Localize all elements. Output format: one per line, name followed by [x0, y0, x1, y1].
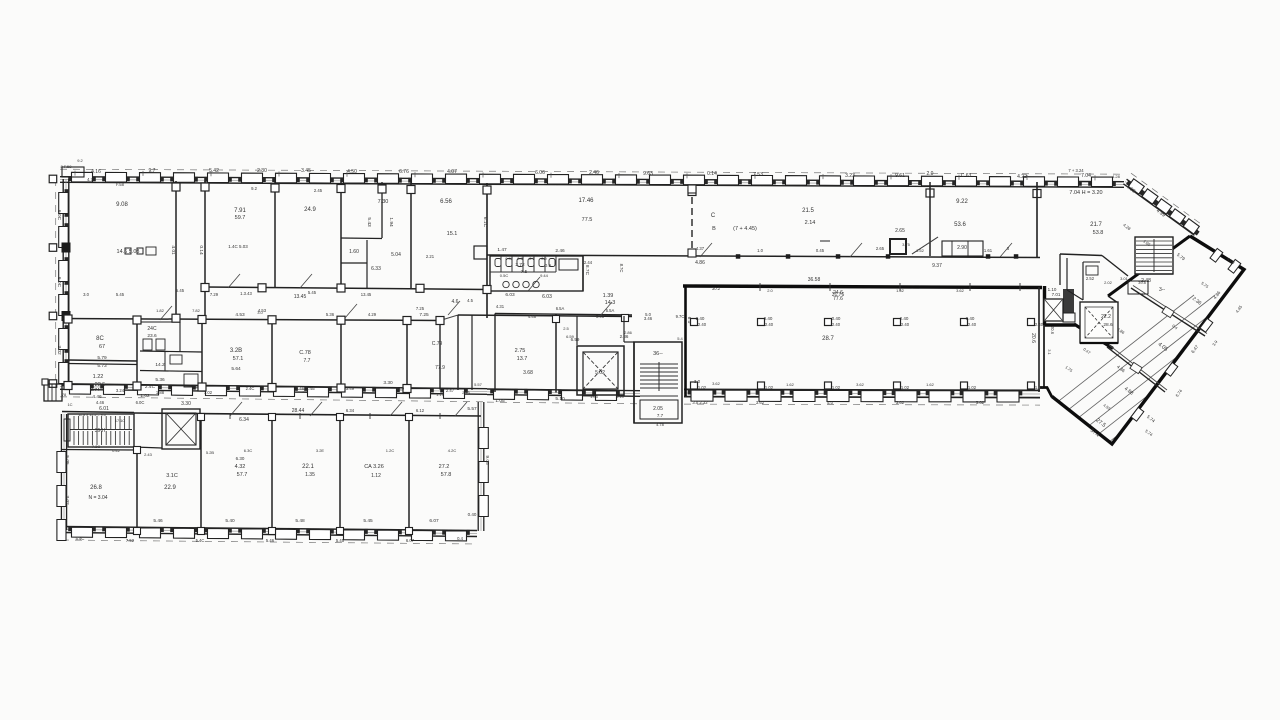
svg-text:7.04: 7.04	[1081, 173, 1091, 179]
svg-text:7.82: 7.82	[192, 308, 201, 313]
svg-text:CA 3.26: CA 3.26	[364, 464, 384, 470]
svg-text:5.2B: 5.2B	[206, 450, 215, 455]
svg-text:5.79: 5.79	[97, 355, 107, 361]
svg-text:5.62: 5.62	[976, 400, 985, 405]
svg-text:11.8 x 11.5 = 9.0: 11.8 x 11.5 = 9.0	[78, 413, 106, 417]
svg-text:1.17: 1.17	[436, 392, 445, 397]
svg-text:4.28: 4.28	[1112, 174, 1121, 179]
svg-text:31.76: 31.76	[832, 292, 845, 298]
svg-text:53.8: 53.8	[1093, 230, 1104, 236]
svg-text:5.42: 5.42	[209, 168, 219, 174]
svg-text:5.05: 5.05	[64, 455, 70, 465]
svg-text:1.02: 1.02	[698, 385, 707, 390]
svg-text:5.46: 5.46	[153, 518, 163, 524]
svg-text:57.1: 57.1	[233, 356, 244, 362]
svg-text:2.47: 2.47	[446, 388, 455, 393]
svg-text:4.31: 4.31	[496, 304, 505, 309]
svg-text:5.4: 5.4	[677, 336, 683, 341]
svg-text:4.50: 4.50	[347, 169, 357, 175]
svg-text:13.7: 13.7	[517, 356, 528, 362]
svg-text:1.35: 1.35	[305, 472, 315, 478]
svg-text:15.1: 15.1	[447, 231, 458, 237]
svg-text:1.60: 1.60	[349, 249, 359, 255]
svg-text:4.07: 4.07	[447, 169, 457, 175]
svg-text:3.02: 3.02	[56, 345, 62, 355]
svg-text:3.75: 3.75	[902, 242, 911, 247]
svg-text:9.7: 9.7	[149, 168, 156, 174]
svg-text:1.02: 1.02	[832, 385, 841, 390]
svg-text:0.40: 0.40	[966, 316, 975, 321]
svg-text:5.40: 5.40	[225, 518, 235, 524]
svg-text:0.9: 0.9	[541, 256, 547, 261]
svg-text:0.9: 0.9	[517, 256, 523, 261]
svg-text:3.24: 3.24	[116, 388, 125, 393]
svg-text:5.10: 5.10	[616, 394, 625, 399]
svg-text:22.2: 22.2	[1101, 314, 1111, 320]
svg-text:2.45: 2.45	[314, 188, 323, 193]
svg-text:N = 3.04: N = 3.04	[88, 495, 107, 501]
svg-text:5.36: 5.36	[326, 312, 335, 317]
svg-text:6.0C: 6.0C	[136, 400, 145, 405]
svg-text:2.25: 2.25	[462, 390, 471, 395]
svg-text:36.58: 36.58	[808, 277, 821, 283]
svg-text:7.01: 7.01	[1052, 292, 1061, 297]
svg-text:B: B	[712, 226, 716, 232]
svg-text:14.6 5.03: 14.6 5.03	[117, 249, 140, 255]
svg-text:(7 + 4.45): (7 + 4.45)	[733, 226, 757, 232]
svg-text:4.16: 4.16	[91, 169, 101, 175]
svg-text:5.45: 5.45	[336, 538, 345, 543]
svg-text:6.34: 6.34	[239, 417, 249, 423]
svg-text:2.40: 2.40	[765, 322, 774, 327]
svg-text:8 F.58: 8 F.58	[61, 164, 73, 169]
svg-text:5.0: 5.0	[645, 312, 651, 317]
svg-text:3.0: 3.0	[694, 379, 701, 384]
svg-text:2.86: 2.86	[624, 330, 633, 335]
svg-text:7.52: 7.52	[126, 538, 135, 543]
svg-text:77.9: 77.9	[435, 365, 445, 371]
svg-text:1.88: 1.88	[156, 390, 165, 395]
svg-text:7.25: 7.25	[416, 306, 425, 311]
svg-text:30.2: 30.2	[712, 286, 721, 291]
svg-text:1.82: 1.82	[156, 308, 165, 313]
svg-text:2.43: 2.43	[144, 452, 153, 457]
svg-text:5.36: 5.36	[155, 377, 165, 383]
svg-text:4.48: 4.48	[528, 314, 537, 319]
svg-text:22.9: 22.9	[164, 485, 176, 491]
svg-text:4.86: 4.86	[695, 260, 705, 266]
svg-text:3.1C: 3.1C	[166, 473, 178, 479]
svg-text:5.5A: 5.5A	[606, 308, 615, 313]
svg-text:24.9: 24.9	[304, 207, 316, 213]
svg-text:7.25: 7.25	[419, 312, 429, 318]
svg-text:1.12: 1.12	[371, 473, 381, 479]
svg-text:6.01: 6.01	[99, 406, 109, 412]
svg-text:28.44: 28.44	[292, 408, 305, 414]
svg-text:9.63: 9.63	[643, 171, 653, 177]
svg-text:36--: 36--	[653, 351, 663, 357]
svg-text:5.10: 5.10	[555, 396, 565, 402]
svg-text:4.53: 4.53	[235, 312, 245, 318]
svg-text:4.2C: 4.2C	[448, 448, 457, 453]
svg-text:27.2: 27.2	[439, 464, 450, 470]
svg-text:6.12: 6.12	[416, 408, 425, 413]
svg-text:5.4C: 5.4C	[196, 538, 205, 543]
svg-text:39.8: 39.8	[1138, 280, 1147, 285]
svg-text:17.46: 17.46	[578, 198, 594, 204]
svg-text:6.33: 6.33	[371, 266, 381, 272]
svg-text:4.32: 4.32	[235, 464, 246, 470]
svg-text:3.23: 3.23	[845, 173, 855, 179]
svg-text:3.62: 3.62	[712, 381, 721, 386]
svg-text:5.02: 5.02	[595, 370, 605, 376]
svg-text:5.45: 5.45	[305, 386, 315, 392]
svg-text:6.5A: 6.5A	[556, 306, 565, 311]
svg-text:7.7: 7.7	[304, 358, 311, 364]
svg-text:21.7: 21.7	[1090, 222, 1102, 228]
svg-text:3.62: 3.62	[956, 288, 965, 293]
svg-text:C.79: C.79	[432, 341, 443, 347]
svg-text:3--: 3--	[1159, 287, 1165, 293]
svg-text:77.5: 77.5	[582, 217, 593, 223]
svg-text:6.07: 6.07	[406, 538, 415, 543]
svg-text:3.02: 3.02	[64, 495, 70, 505]
svg-text:9.44: 9.44	[540, 273, 549, 278]
svg-text:7.04 H = 3.20: 7.04 H = 3.20	[1069, 190, 1102, 196]
svg-text:3.2E: 3.2E	[316, 448, 325, 453]
svg-text:2.65: 2.65	[895, 228, 905, 234]
svg-text:28.7: 28.7	[822, 336, 834, 342]
svg-text:0.5: 0.5	[545, 263, 552, 269]
svg-text:5.45: 5.45	[308, 290, 317, 295]
svg-text:3.0: 3.0	[257, 310, 263, 315]
svg-text:59.7: 59.7	[235, 215, 246, 221]
svg-text:2.52: 2.52	[1086, 276, 1095, 281]
svg-text:2.4C: 2.4C	[145, 384, 156, 390]
svg-text:2.40: 2.40	[901, 322, 910, 327]
svg-text:13.45: 13.45	[294, 294, 307, 300]
svg-text:14.2: 14.2	[155, 362, 165, 368]
svg-text:53.6: 53.6	[954, 222, 966, 228]
svg-text:5.45: 5.45	[176, 288, 185, 293]
svg-text:2.4C: 2.4C	[246, 386, 255, 391]
svg-text:4.46: 4.46	[96, 400, 105, 405]
svg-text:2.46: 2.46	[555, 248, 565, 254]
svg-text:6.3C: 6.3C	[244, 448, 253, 453]
svg-text:2.30: 2.30	[257, 168, 267, 174]
svg-text:1.3.43: 1.3.43	[240, 291, 252, 296]
svg-text:2.40: 2.40	[900, 316, 909, 321]
svg-text:1.22: 1.22	[93, 374, 104, 380]
svg-text:9.7C: 9.7C	[676, 314, 685, 319]
svg-text:9.61: 9.61	[895, 173, 905, 179]
svg-text:3.62: 3.62	[756, 400, 765, 405]
svg-text:6.07: 6.07	[429, 518, 439, 524]
svg-text:2.90: 2.90	[957, 245, 967, 251]
svg-text:6.06: 6.06	[535, 170, 545, 176]
svg-text:5.49: 5.49	[396, 386, 405, 391]
svg-text:6.59: 6.59	[566, 334, 575, 339]
svg-text:4.78: 4.78	[656, 422, 665, 427]
svg-text:5.48: 5.48	[295, 518, 305, 524]
svg-text:3.62: 3.62	[856, 382, 865, 387]
svg-text:3.01: 3.01	[1120, 276, 1129, 281]
svg-text:2.65: 2.65	[876, 246, 885, 251]
svg-text:1.02: 1.02	[968, 385, 977, 390]
svg-text:9.22: 9.22	[956, 199, 968, 205]
svg-text:1.0: 1.0	[757, 248, 763, 253]
svg-text:5.73: 5.73	[97, 363, 107, 369]
svg-text:5.4C: 5.4C	[76, 536, 85, 541]
svg-text:1C: 1C	[67, 402, 72, 407]
svg-text:67: 67	[99, 344, 105, 350]
svg-text:0.45: 0.45	[816, 248, 825, 253]
svg-text:8.7C: 8.7C	[584, 265, 590, 276]
svg-text:0.42: 0.42	[112, 448, 121, 453]
svg-text:1.02: 1.02	[1035, 385, 1044, 390]
svg-text:6.03: 6.03	[505, 292, 515, 298]
svg-text:3.0 2.32: 3.0 2.32	[692, 400, 708, 405]
svg-text:1.39: 1.39	[603, 293, 614, 299]
svg-text:2.40: 2.40	[968, 322, 977, 327]
svg-text:5.57: 5.57	[467, 406, 477, 412]
svg-text:1.4C 5.03: 1.4C 5.03	[228, 244, 248, 249]
svg-text:3.68: 3.68	[523, 370, 533, 376]
svg-text:2.72: 2.72	[515, 262, 525, 268]
svg-text:9.37: 9.37	[932, 263, 942, 269]
svg-text:7 + 3.24: 7 + 3.24	[1068, 168, 1084, 173]
svg-text:0.40: 0.40	[468, 512, 477, 517]
svg-text:7.7: 7.7	[657, 413, 664, 418]
svg-text:2.0: 2.0	[927, 171, 934, 177]
svg-text:4.29: 4.29	[368, 312, 377, 317]
svg-text:5.64: 5.64	[231, 366, 241, 372]
svg-text:28.6: 28.6	[1103, 322, 1113, 328]
svg-text:3.2B: 3.2B	[230, 348, 242, 354]
svg-text:3.49: 3.49	[346, 386, 355, 391]
svg-text:4.5: 4.5	[467, 298, 473, 303]
svg-text:24C: 24C	[147, 326, 157, 332]
svg-text:3.0: 3.0	[83, 292, 89, 297]
svg-text:5.04: 5.04	[391, 252, 401, 258]
svg-text:13.45: 13.45	[361, 292, 372, 297]
svg-text:2.46: 2.46	[589, 170, 599, 176]
svg-text:5.91: 5.91	[596, 314, 605, 319]
svg-text:6.0C: 6.0C	[56, 210, 62, 221]
svg-text:0.4: 0.4	[457, 536, 463, 541]
svg-text:2.40: 2.40	[698, 322, 707, 327]
svg-text:1.61: 1.61	[984, 248, 993, 253]
svg-text:1.47: 1.47	[497, 247, 507, 253]
svg-text:5.43: 5.43	[366, 217, 372, 227]
svg-text:20.6: 20.6	[1030, 333, 1036, 343]
svg-text:4.7: 4.7	[87, 177, 93, 182]
svg-text:4.22: 4.22	[1017, 174, 1027, 180]
svg-text:0.14: 0.14	[198, 245, 204, 255]
svg-text:7.53: 7.53	[753, 172, 763, 178]
svg-text:1.05: 1.05	[590, 394, 599, 399]
svg-text:2.21: 2.21	[426, 254, 435, 259]
svg-text:6.76: 6.76	[399, 169, 409, 175]
svg-text:14.3: 14.3	[605, 300, 616, 306]
svg-text:5.57: 5.57	[474, 382, 483, 387]
svg-text:21.5: 21.5	[802, 208, 814, 214]
svg-text:1.94: 1.94	[388, 217, 394, 227]
svg-text:7.5: 7.5	[521, 269, 528, 275]
svg-text:57.7: 57.7	[237, 472, 248, 478]
svg-text:3.62: 3.62	[896, 400, 905, 405]
svg-text:2.02: 2.02	[1104, 280, 1113, 285]
svg-text:9.08: 9.08	[116, 202, 128, 208]
svg-text:3.1: 3.1	[1047, 349, 1052, 355]
svg-text:C: C	[711, 213, 716, 219]
svg-text:3.30: 3.30	[181, 401, 191, 407]
svg-text:F.58: F.58	[116, 182, 125, 187]
svg-text:57.8: 57.8	[441, 472, 452, 478]
svg-text:1.02: 1.02	[140, 393, 150, 399]
svg-text:5.45: 5.45	[363, 518, 373, 524]
svg-text:0.5C: 0.5C	[500, 273, 509, 278]
svg-text:26.8: 26.8	[90, 485, 102, 491]
svg-text:2.5: 2.5	[563, 326, 569, 331]
svg-text:0.14: 0.14	[707, 171, 717, 177]
svg-text:2.75: 2.75	[515, 348, 526, 354]
svg-text:6.1C: 6.1C	[482, 217, 488, 228]
svg-text:2.7: 2.7	[529, 256, 535, 261]
svg-text:1.2C: 1.2C	[386, 448, 395, 453]
svg-text:5.45: 5.45	[116, 292, 125, 297]
svg-text:9.2: 9.2	[77, 158, 83, 163]
svg-text:6.0: 6.0	[686, 317, 692, 324]
svg-text:1.62: 1.62	[926, 382, 935, 387]
svg-text:6.0C: 6.0C	[56, 277, 62, 288]
svg-text:8.7C: 8.7C	[619, 264, 624, 273]
svg-text:8C: 8C	[96, 336, 104, 342]
svg-text:78: 78	[62, 392, 67, 397]
svg-text:1.05: 1.05	[495, 398, 505, 404]
svg-text:6.30: 6.30	[236, 456, 245, 461]
svg-text:0.40: 0.40	[832, 316, 841, 321]
svg-text:2.05: 2.05	[653, 406, 663, 412]
svg-text:7.91: 7.91	[234, 208, 246, 214]
svg-text:C.78: C.78	[299, 350, 311, 356]
svg-text:1.02: 1.02	[765, 385, 774, 390]
svg-text:2.40: 2.40	[1035, 322, 1044, 327]
svg-text:7.30: 7.30	[378, 199, 389, 205]
svg-text:9.2: 9.2	[251, 186, 257, 191]
svg-text:36-H: 36-H	[95, 428, 106, 434]
svg-text:4.01: 4.01	[170, 245, 176, 255]
svg-text:2.40: 2.40	[832, 322, 841, 327]
svg-text:23.6: 23.6	[147, 333, 157, 339]
svg-text:22.1: 22.1	[302, 464, 314, 470]
svg-text:2.0: 2.0	[767, 288, 773, 293]
svg-text:5.0: 5.0	[827, 400, 833, 405]
svg-text:5.46: 5.46	[296, 386, 305, 391]
svg-text:0.40: 0.40	[764, 316, 773, 321]
svg-text:C.63: C.63	[961, 173, 972, 179]
svg-text:9.05: 9.05	[484, 455, 490, 465]
svg-text:2.14: 2.14	[805, 220, 816, 226]
svg-text:2.40: 2.40	[696, 316, 705, 321]
svg-text:4.37: 4.37	[696, 246, 705, 251]
svg-text:7.29: 7.29	[210, 292, 219, 297]
svg-text:7.3C: 7.3C	[92, 444, 101, 449]
svg-text:5.46: 5.46	[266, 538, 275, 543]
svg-text:6.56: 6.56	[440, 199, 452, 205]
svg-text:1.62: 1.62	[786, 382, 795, 387]
svg-text:2.44: 2.44	[584, 260, 593, 265]
svg-text:0.9: 0.9	[505, 256, 511, 261]
svg-text:1.02: 1.02	[204, 390, 213, 395]
svg-text:17.1C: 17.1C	[115, 419, 125, 423]
svg-text:1.02: 1.02	[901, 385, 910, 390]
svg-text:3.45: 3.45	[301, 168, 311, 174]
svg-text:3.74: 3.74	[90, 387, 100, 393]
svg-text:1.62: 1.62	[896, 288, 905, 293]
svg-text:6.03: 6.03	[542, 294, 552, 300]
svg-text:6.34: 6.34	[346, 408, 355, 413]
svg-text:20.6: 20.6	[1050, 326, 1055, 335]
svg-text:3.30: 3.30	[383, 380, 393, 386]
